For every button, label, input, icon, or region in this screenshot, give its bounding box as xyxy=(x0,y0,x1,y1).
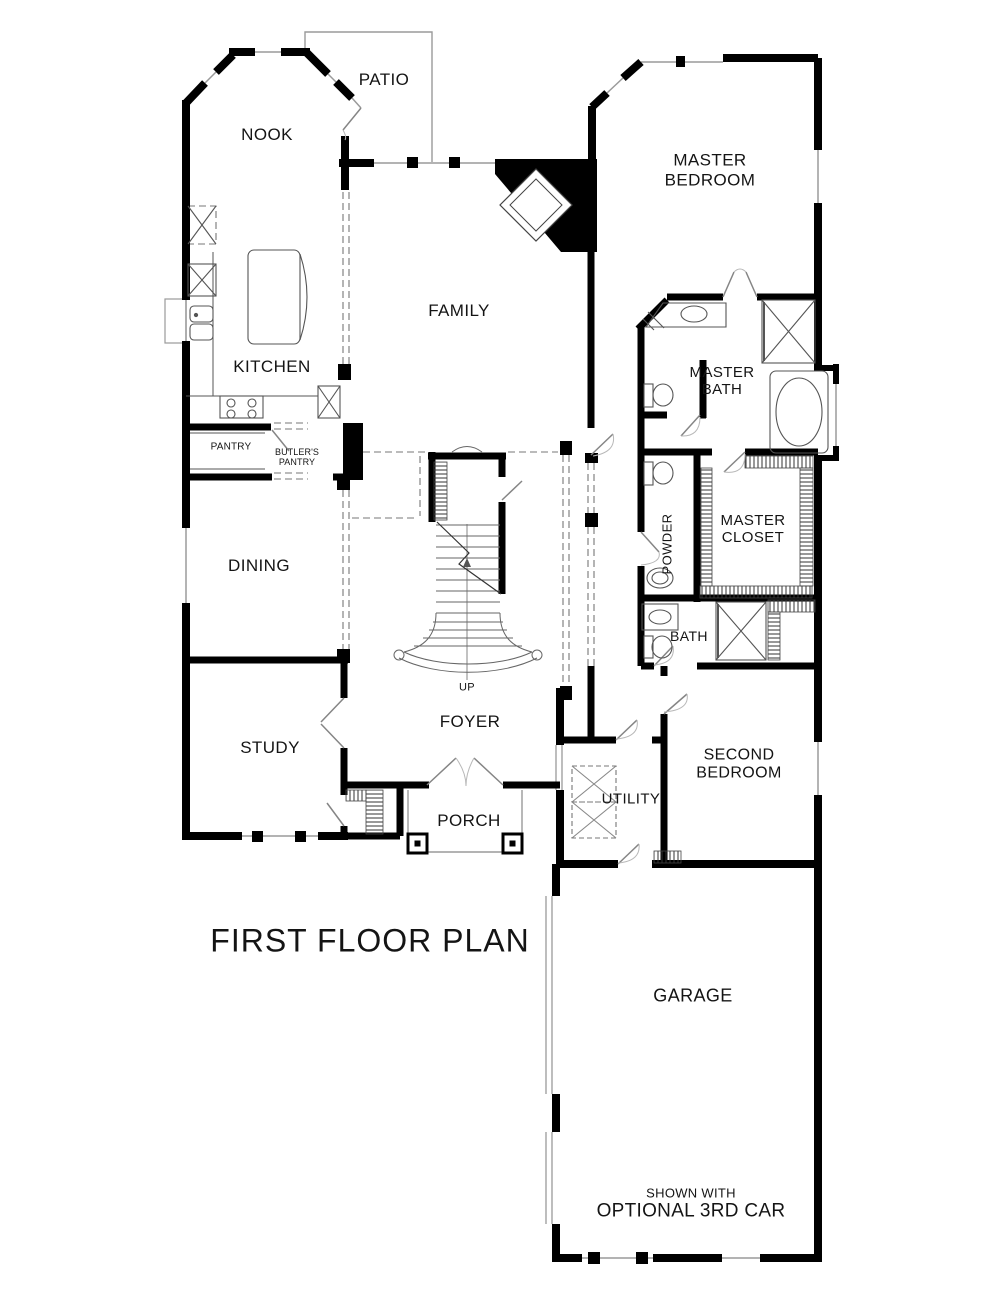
room-label-master-bedroom: MASTER BEDROOM xyxy=(665,150,756,189)
fireplace xyxy=(495,159,597,252)
porch-columns xyxy=(408,834,522,853)
room-label-master-closet: MASTER CLOSET xyxy=(721,512,786,547)
toilet-powder xyxy=(644,462,673,485)
patio-outline xyxy=(305,32,432,162)
room-label-study: STUDY xyxy=(240,738,300,758)
range-stove xyxy=(220,396,263,418)
room-label-family: FAMILY xyxy=(428,301,490,321)
garage-note-line1: SHOWN WITH xyxy=(597,1186,786,1201)
toilet-bath xyxy=(644,636,672,658)
room-label-utility: UTILITY xyxy=(602,790,661,807)
room-label-butlers-pantry: BUTLER'S PANTRY xyxy=(275,448,319,468)
tub-bump-wall xyxy=(818,364,836,461)
room-label-porch: PORCH xyxy=(437,811,500,831)
dashed-opening-lines xyxy=(188,192,594,686)
room-label-nook: NOOK xyxy=(241,125,293,145)
garage-note: SHOWN WITH OPTIONAL 3RD CAR xyxy=(597,1186,786,1223)
room-label-foyer: FOYER xyxy=(440,712,501,732)
window-lines xyxy=(186,52,836,1258)
plan-title: FIRST FLOOR PLAN xyxy=(210,923,529,960)
room-label-bath: BATH xyxy=(670,628,708,644)
refrigerator-cabinets xyxy=(188,206,340,418)
room-label-dining: DINING xyxy=(228,556,290,576)
bath-shower xyxy=(716,602,766,660)
room-label-master-bath: MASTER BATH xyxy=(690,364,755,399)
kitchen-sink xyxy=(190,306,213,340)
room-label-garage: GARAGE xyxy=(653,986,732,1007)
room-label-pantry: PANTRY xyxy=(211,441,252,453)
bath-sink xyxy=(642,604,678,630)
kitchen-window-bump xyxy=(165,299,186,343)
room-label-second-bedroom: SECOND BEDROOM xyxy=(696,747,781,784)
garage-note-line2: OPTIONAL 3RD CAR xyxy=(597,1201,786,1223)
master-shower xyxy=(762,300,815,363)
stair-up-label: UP xyxy=(459,682,475,695)
room-label-kitchen: KITCHEN xyxy=(233,357,310,377)
floor-plan: PATIO NOOK MASTER BEDROOM FAMILY KITCHEN… xyxy=(0,0,1000,1294)
room-label-patio: PATIO xyxy=(359,70,410,90)
toilet-wc xyxy=(644,384,673,407)
door-arcs xyxy=(343,130,746,863)
room-label-powder: POWDER xyxy=(661,514,676,575)
kitchen-island xyxy=(248,250,307,344)
stair-direction-arrow xyxy=(463,558,471,567)
garden-tub xyxy=(770,371,828,453)
floor-plan-drawing xyxy=(0,0,1000,1294)
